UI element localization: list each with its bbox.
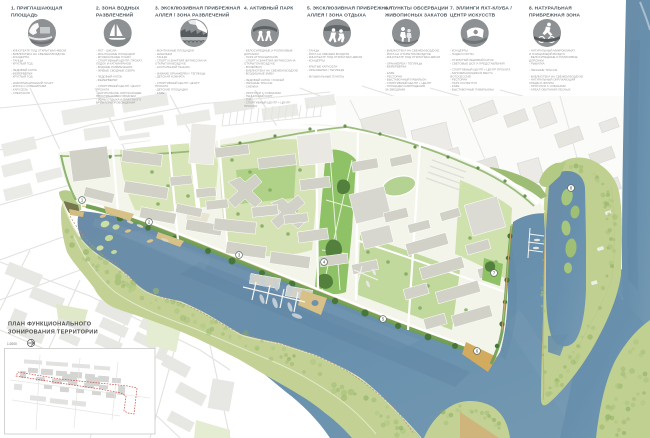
svg-text:- СНЕЖКИ: - СНЕЖКИ [244,85,258,89]
svg-text:ЦЕНТР ИСКУССТВ: ЦЕНТР ИСКУССТВ [450,13,496,19]
svg-text:- КАФЕ: - КАФЕ [155,91,164,95]
svg-text:ПРОКАТА: ПРОКАТА [244,104,257,108]
svg-text:ЗА ЗВЕЗДАМИ: ЗА ЗВЕЗДАМИ [385,88,405,92]
svg-text:- НАСТОЛЬНЫЙ ТЕННИС: - НАСТОЛЬНЫЙ ТЕННИС [155,65,190,69]
svg-text:ЖИВОПИСНЫХ ЗАКАТОВ: ЖИВОПИСНЫХ ЗАКАТОВ [384,13,448,19]
svg-text:- ФЕЙЕРВЕРКИ: - ФЕЙЕРВЕРКИ [96,78,117,82]
svg-text:- ЖИВЫЕ СВОДНЫЕ ОЗЕРА: - ЖИВЫЕ СВОДНЫЕ ОЗЕРА [96,68,135,72]
svg-text:ВРЕМЯПРЕПРОВОЖДЕНИЯ: ВРЕМЯПРЕПРОВОЖДЕНИЯ [96,101,135,105]
svg-text:- ОРАНЖЕРЕИ / ТЕПЛИЦЫ: - ОРАНЖЕРЕИ / ТЕПЛИЦЫ [307,68,345,72]
svg-text:- АРЕАЛ ОБИТАНИЯ ЛЕСНЫХ: - АРЕАЛ ОБИТАНИЯ ЛЕСНЫХ [529,88,571,92]
svg-text:- КИНОТЕАТР ПОД ОТКРЫТЫМ НЕБОМ: - КИНОТЕАТР ПОД ОТКРЫТЫМ НЕБОМ [385,55,441,59]
svg-text:ЗОНИРОВАНИЯ ТЕРРИТОРИИ: ЗОНИРОВАНИЯ ТЕРРИТОРИИ [8,330,98,336]
svg-text:- МУЗЫКАЛЬНЫЕ ПУНКТЫ: - МУЗЫКАЛЬНЫЕ ПУНКТЫ [307,74,345,78]
svg-text:6. ПУНКТЫ ОБСЕРВАЦИИ: 6. ПУНКТЫ ОБСЕРВАЦИИ [385,6,449,12]
svg-text:ПЛОЩАДЬ: ПЛОЩАДЬ [11,13,38,19]
svg-text:- РЫБАЛКА: - РЫБАЛКА [529,62,545,66]
svg-text:8. НАТУРАЛЬНАЯ: 8. НАТУРАЛЬНАЯ [529,6,572,12]
svg-text:3. ЭКСКЛЮЗИВНАЯ ПРИБРЕЖНАЯ: 3. ЭКСКЛЮЗИВНАЯ ПРИБРЕЖНАЯ [155,6,241,12]
svg-text:ПРИБРЕЖНАЯ ЗОНА: ПРИБРЕЖНАЯ ЗОНА [529,13,581,19]
svg-text:- ДЕТСКАЯ КОМНАТА: - ДЕТСКАЯ КОМНАТА [155,75,185,79]
svg-text:2. ЗОНА ВОДНЫХ: 2. ЗОНА ВОДНЫХ [96,6,140,12]
svg-text:- КРУГЛЫЙ ГОД: - КРУГЛЫЙ ГОД [11,62,32,66]
svg-text:- СВЕТОВЫЕ ШОУ И ПРЕДСТАВЛЕНИЯ: - СВЕТОВЫЕ ШОУ И ПРЕДСТАВЛЕНИЯ [450,61,505,65]
svg-text:АЛЛЕЯ / ЗОНА ОТДЫХА: АЛЛЕЯ / ЗОНА ОТДЫХА [307,13,366,19]
svg-text:7. ЭЛЛИНГИ ЯХТ-КЛУБА /: 7. ЭЛЛИНГИ ЯХТ-КЛУБА / [450,6,512,12]
svg-text:- КОНЦЕРТЫ: - КОНЦЕРТЫ [307,58,325,62]
svg-text:- СПЕКТАКЛИ: - СПЕКТАКЛИ [11,91,30,95]
svg-text:- КРУГЛЫЙ ГОД: - КРУГЛЫЙ ГОД [11,75,32,79]
svg-text:- ЛЫЖНЫЕ ТРАССЫ: - ЛЫЖНЫЕ ТРАССЫ [529,68,558,72]
svg-text:- ВОЗДУШНЫЕ ЗМЕИ: - ВОЗДУШНЫЕ ЗМЕИ [244,72,274,76]
svg-text:1:2000: 1:2000 [7,342,17,346]
svg-text:ПЛАН ФУНКЦИОНАЛЬНОГО: ПЛАН ФУНКЦИОНАЛЬНОГО [8,322,92,328]
svg-text:- ФЕЙЕРВЕРКИ: - ФЕЙЕРВЕРКИ [385,65,406,69]
svg-text:1. ПРИГЛАШАЮЩАЯ: 1. ПРИГЛАШАЮЩАЯ [11,6,63,12]
svg-text:5. ЭКСКЛЮЗИВНАЯ ПРИБРЕЖНАЯ: 5. ЭКСКЛЮЗИВНАЯ ПРИБРЕЖНАЯ [307,6,393,12]
svg-text:- ВЫСТАВОЧНЫЕ ПАВИЛЬОНЫ: - ВЫСТАВОЧНЫЕ ПАВИЛЬОНЫ [450,88,494,92]
svg-text:- ЛОДКИ И ЯХТЫ: - ЛОДКИ И ЯХТЫ [450,52,474,56]
